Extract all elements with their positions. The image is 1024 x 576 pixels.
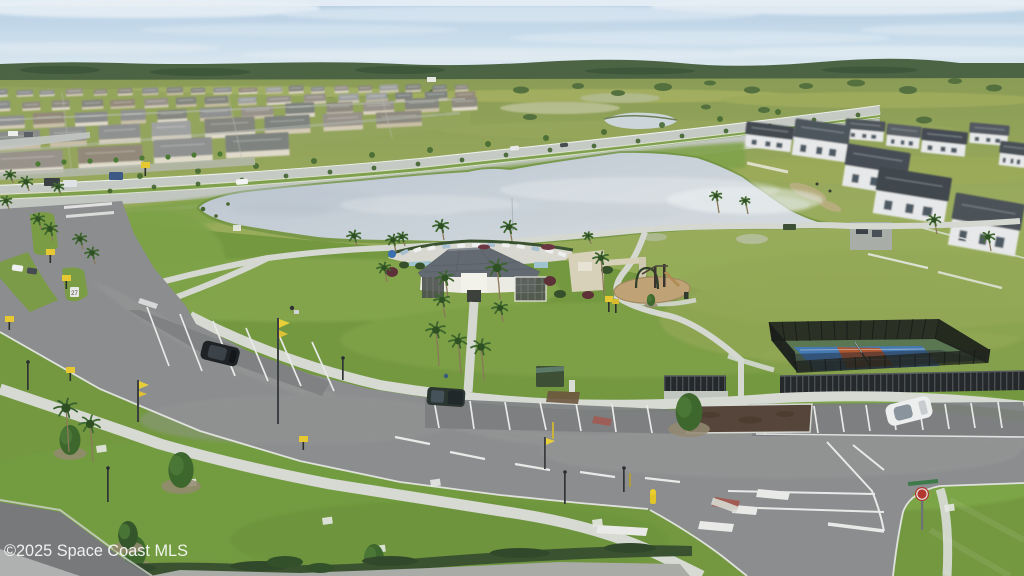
svg-text:©2025 Space Coast MLS: ©2025 Space Coast MLS (4, 542, 188, 560)
svg-text:27: 27 (71, 291, 78, 297)
